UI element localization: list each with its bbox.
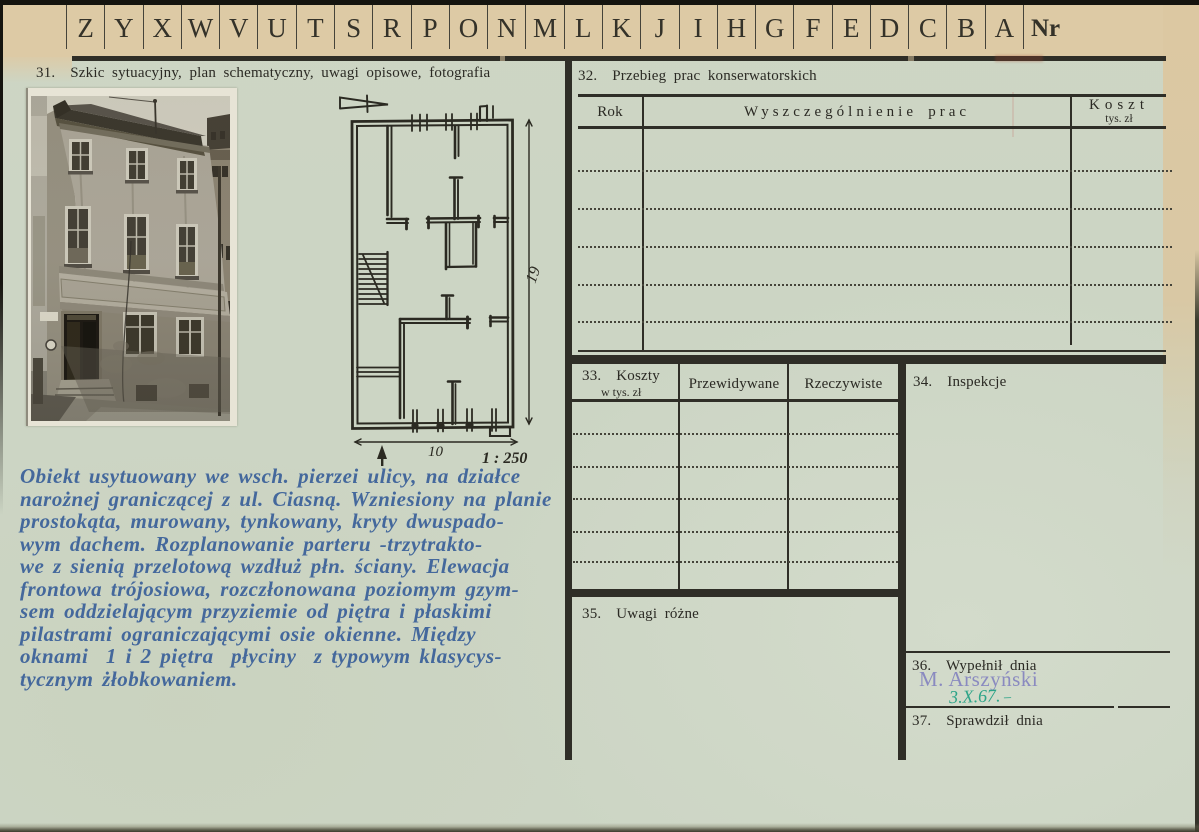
svg-text:19: 19 bbox=[523, 265, 544, 286]
svg-text:10: 10 bbox=[428, 444, 444, 460]
